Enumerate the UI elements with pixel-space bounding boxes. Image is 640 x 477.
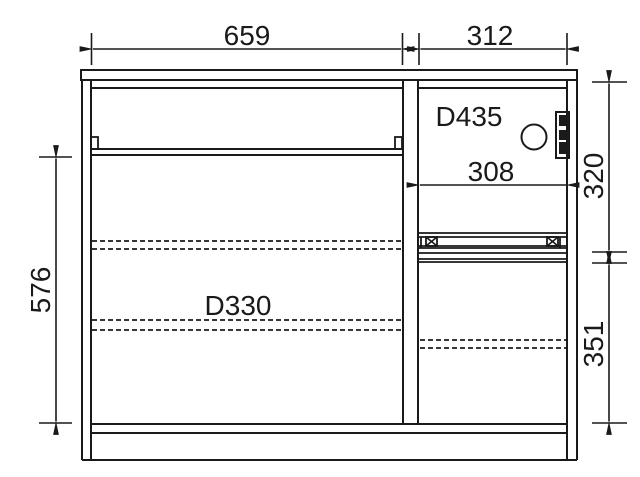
hidden-lines bbox=[92, 241, 566, 348]
slide-rail-shelf bbox=[418, 233, 567, 262]
dimension-text-312: 312 bbox=[467, 20, 514, 51]
dimension-height-lower-right: 351 bbox=[578, 263, 627, 423]
dimension-text-308: 308 bbox=[468, 156, 515, 187]
cabinet-dimension-drawing: 659 312 308 576 320 351 bbox=[0, 0, 640, 477]
depth-label-d330: D330 bbox=[205, 290, 272, 321]
dimension-inner-width: 308 bbox=[420, 156, 566, 187]
dimension-text-659: 659 bbox=[224, 20, 271, 51]
left-shelf bbox=[91, 137, 403, 155]
outlet-slot bbox=[559, 142, 566, 154]
outlet-slot bbox=[559, 130, 566, 140]
cabinet-frame bbox=[81, 70, 577, 460]
dimension-text-320: 320 bbox=[578, 153, 609, 200]
outlet-slot bbox=[559, 115, 566, 126]
dimension-height-upper-right: 320 bbox=[578, 82, 627, 252]
top-panel bbox=[81, 70, 577, 80]
round-hole bbox=[522, 125, 547, 150]
depth-label-d435: D435 bbox=[436, 101, 503, 132]
rail-x-box-right bbox=[547, 237, 558, 246]
shelf-bracket-right bbox=[395, 137, 402, 149]
dimension-width-left: 659 bbox=[92, 20, 403, 65]
rail-x-box-left bbox=[426, 237, 437, 246]
dimension-height-left: 576 bbox=[25, 157, 72, 423]
dimension-width-right: 312 bbox=[419, 20, 567, 65]
technical-drawing-page: 659 312 308 576 320 351 bbox=[0, 0, 640, 477]
dimension-text-576: 576 bbox=[25, 267, 56, 314]
dimension-text-351: 351 bbox=[578, 321, 609, 368]
shelf-bracket-left bbox=[91, 137, 98, 149]
